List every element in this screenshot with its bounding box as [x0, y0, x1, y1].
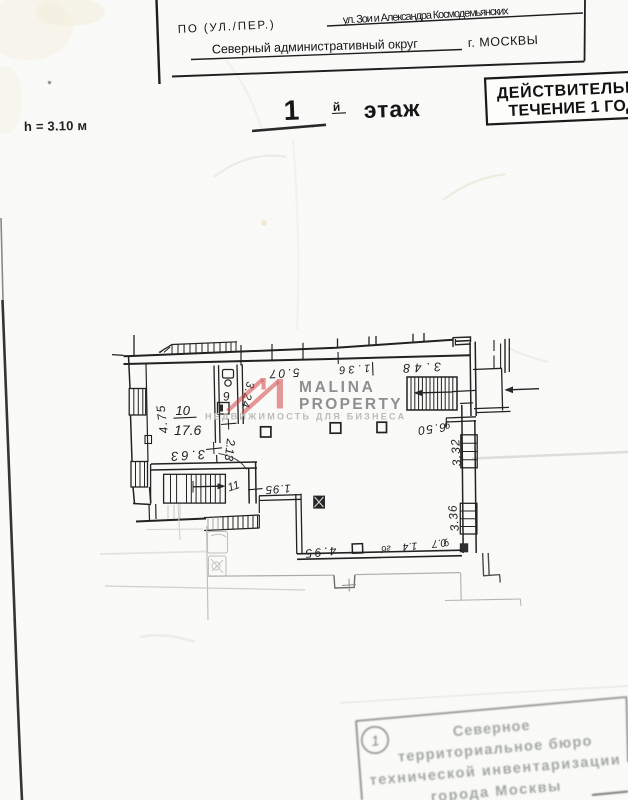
svg-text:10: 10 [176, 403, 191, 418]
svg-text:3.36: 3.36 [445, 505, 462, 533]
svg-text:5.07: 5.07 [268, 366, 300, 382]
svg-text:этаж: этаж [363, 95, 421, 123]
svg-text:3.48: 3.48 [403, 360, 442, 376]
svg-text:3.63: 3.63 [170, 447, 206, 464]
svg-text:PROPERTY: PROPERTY [299, 396, 404, 413]
svg-text:17.6: 17.6 [174, 422, 201, 438]
svg-text:1.4: 1.4 [402, 540, 418, 553]
svg-text:0.7: 0.7 [430, 536, 447, 550]
svg-text:НЕДВИЖИМОСТЬ ДЛЯ БИЗНЕСА: НЕДВИЖИМОСТЬ ДЛЯ БИЗНЕСА [205, 412, 407, 422]
svg-text:1.36: 1.36 [338, 362, 371, 376]
svg-text:1: 1 [283, 94, 300, 126]
svg-text:3.32: 3.32 [448, 439, 464, 467]
svg-text:й: й [333, 100, 341, 114]
svg-text:1.95: 1.95 [265, 482, 291, 496]
svg-text:h = 3.10 м: h = 3.10 м [24, 118, 88, 134]
svg-text:MALINA: MALINA [299, 379, 378, 396]
svg-text:2.13: 2.13 [222, 437, 238, 462]
